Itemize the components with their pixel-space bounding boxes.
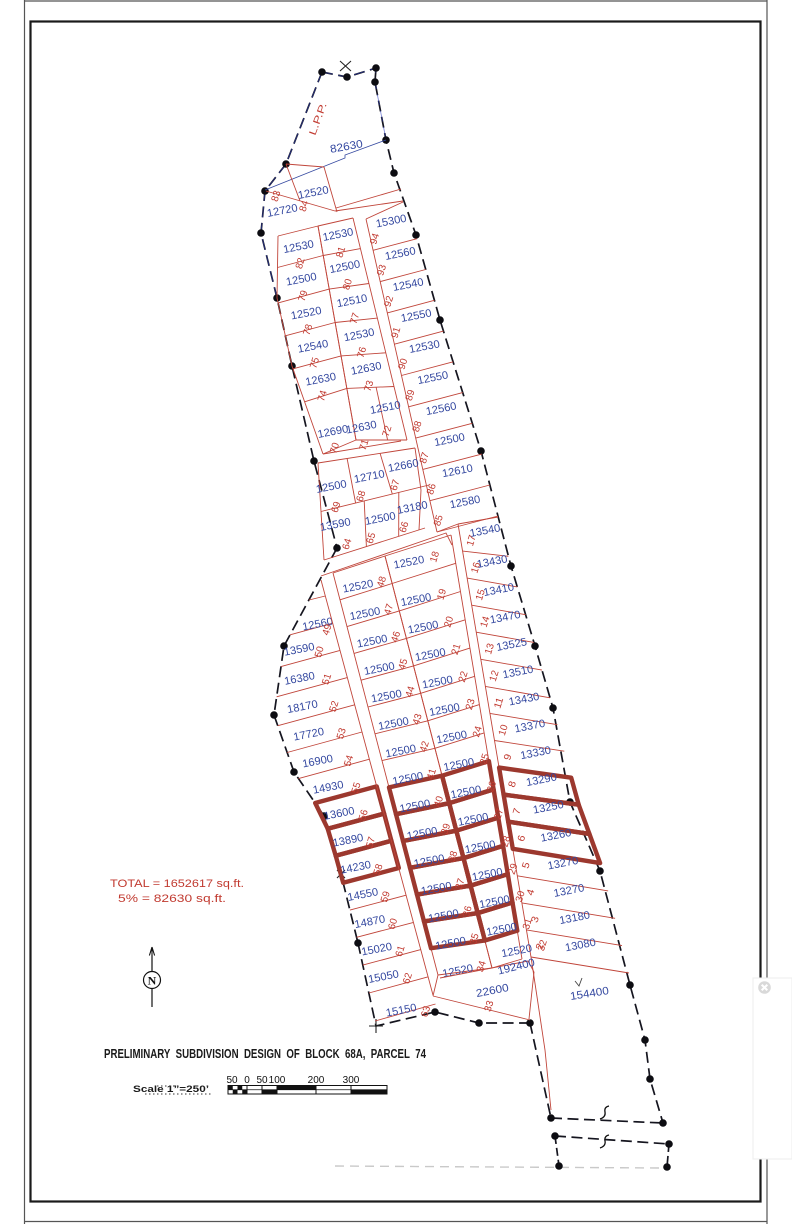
svg-text:PRELIMINARY SUBDIVISION DESI: PRELIMINARY SUBDIVISION DESIGN OF BLOCK … — [104, 1046, 427, 1061]
svg-text:50: 50 — [226, 1075, 238, 1086]
svg-text:Scale 1”=250’: Scale 1”=250’ — [133, 1084, 209, 1095]
svg-text:N: N — [148, 974, 157, 988]
svg-text:TOTAL = 1652617 sq.ft.: TOTAL = 1652617 sq.ft. — [110, 878, 244, 890]
svg-text:100: 100 — [269, 1075, 286, 1086]
svg-text:5% = 82630 sq.ft.: 5% = 82630 sq.ft. — [118, 893, 226, 905]
svg-text:50: 50 — [256, 1075, 268, 1086]
svg-text:0: 0 — [244, 1075, 250, 1086]
svg-text:300: 300 — [343, 1075, 360, 1086]
svg-text:200: 200 — [308, 1075, 325, 1086]
